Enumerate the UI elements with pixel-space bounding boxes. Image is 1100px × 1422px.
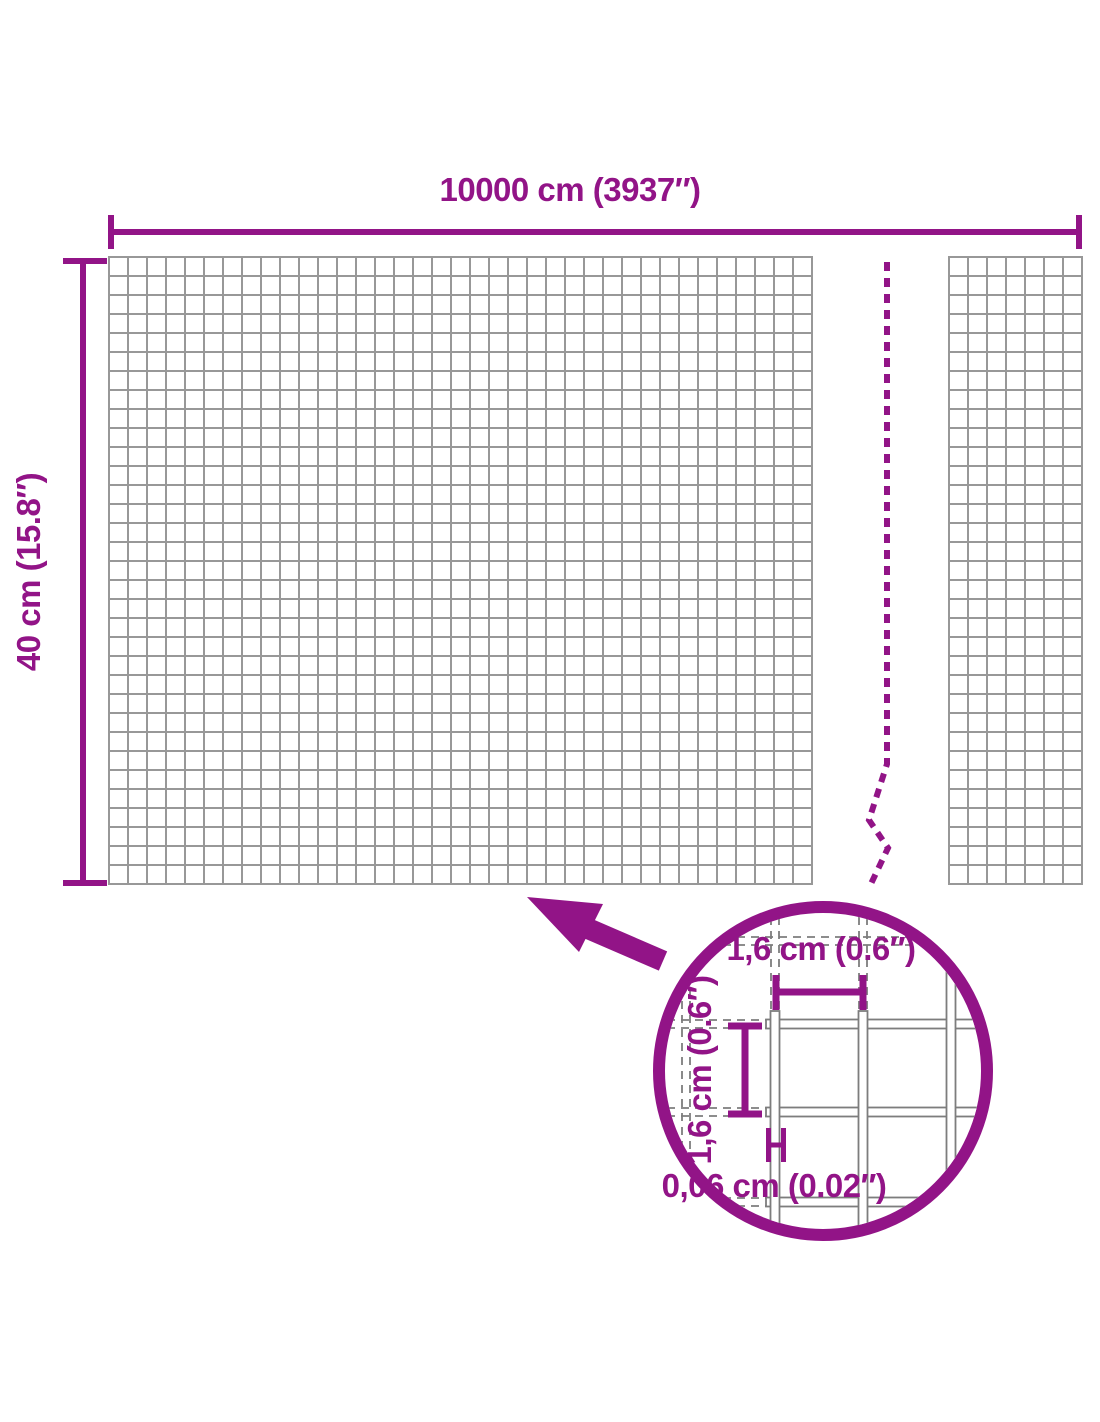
height-dimension: 40 cm (15.8″) bbox=[10, 259, 107, 885]
zoom-arrow-icon bbox=[527, 897, 663, 961]
zoom-arrow-head bbox=[527, 897, 603, 952]
mesh-grid-left bbox=[108, 256, 813, 885]
zoom-arrow-shaft bbox=[589, 929, 663, 961]
mesh-opening-width-label: 1,6 cm (0.6″) bbox=[726, 930, 915, 967]
mesh-grid-right-fill bbox=[948, 256, 1083, 885]
height-dimension-label: 40 cm (15.8″) bbox=[10, 473, 47, 671]
wire-thickness-label: 0,06 cm (0.02″) bbox=[662, 1167, 887, 1204]
width-dimension: 10000 cm (3937″) bbox=[111, 171, 1079, 249]
dimension-diagram-canvas: 10000 cm (3937″) 40 cm (15.8″) bbox=[0, 0, 1100, 1422]
product-dimension-diagram: 10000 cm (3937″) 40 cm (15.8″) bbox=[0, 0, 1100, 1422]
width-dimension-label: 10000 cm (3937″) bbox=[440, 171, 701, 208]
mesh-opening-height-label: 1,6 cm (0.6″) bbox=[681, 975, 718, 1164]
mesh-grid-right bbox=[948, 256, 1083, 885]
mesh-grid-left-fill bbox=[108, 256, 813, 885]
mesh-break-line bbox=[869, 262, 888, 888]
